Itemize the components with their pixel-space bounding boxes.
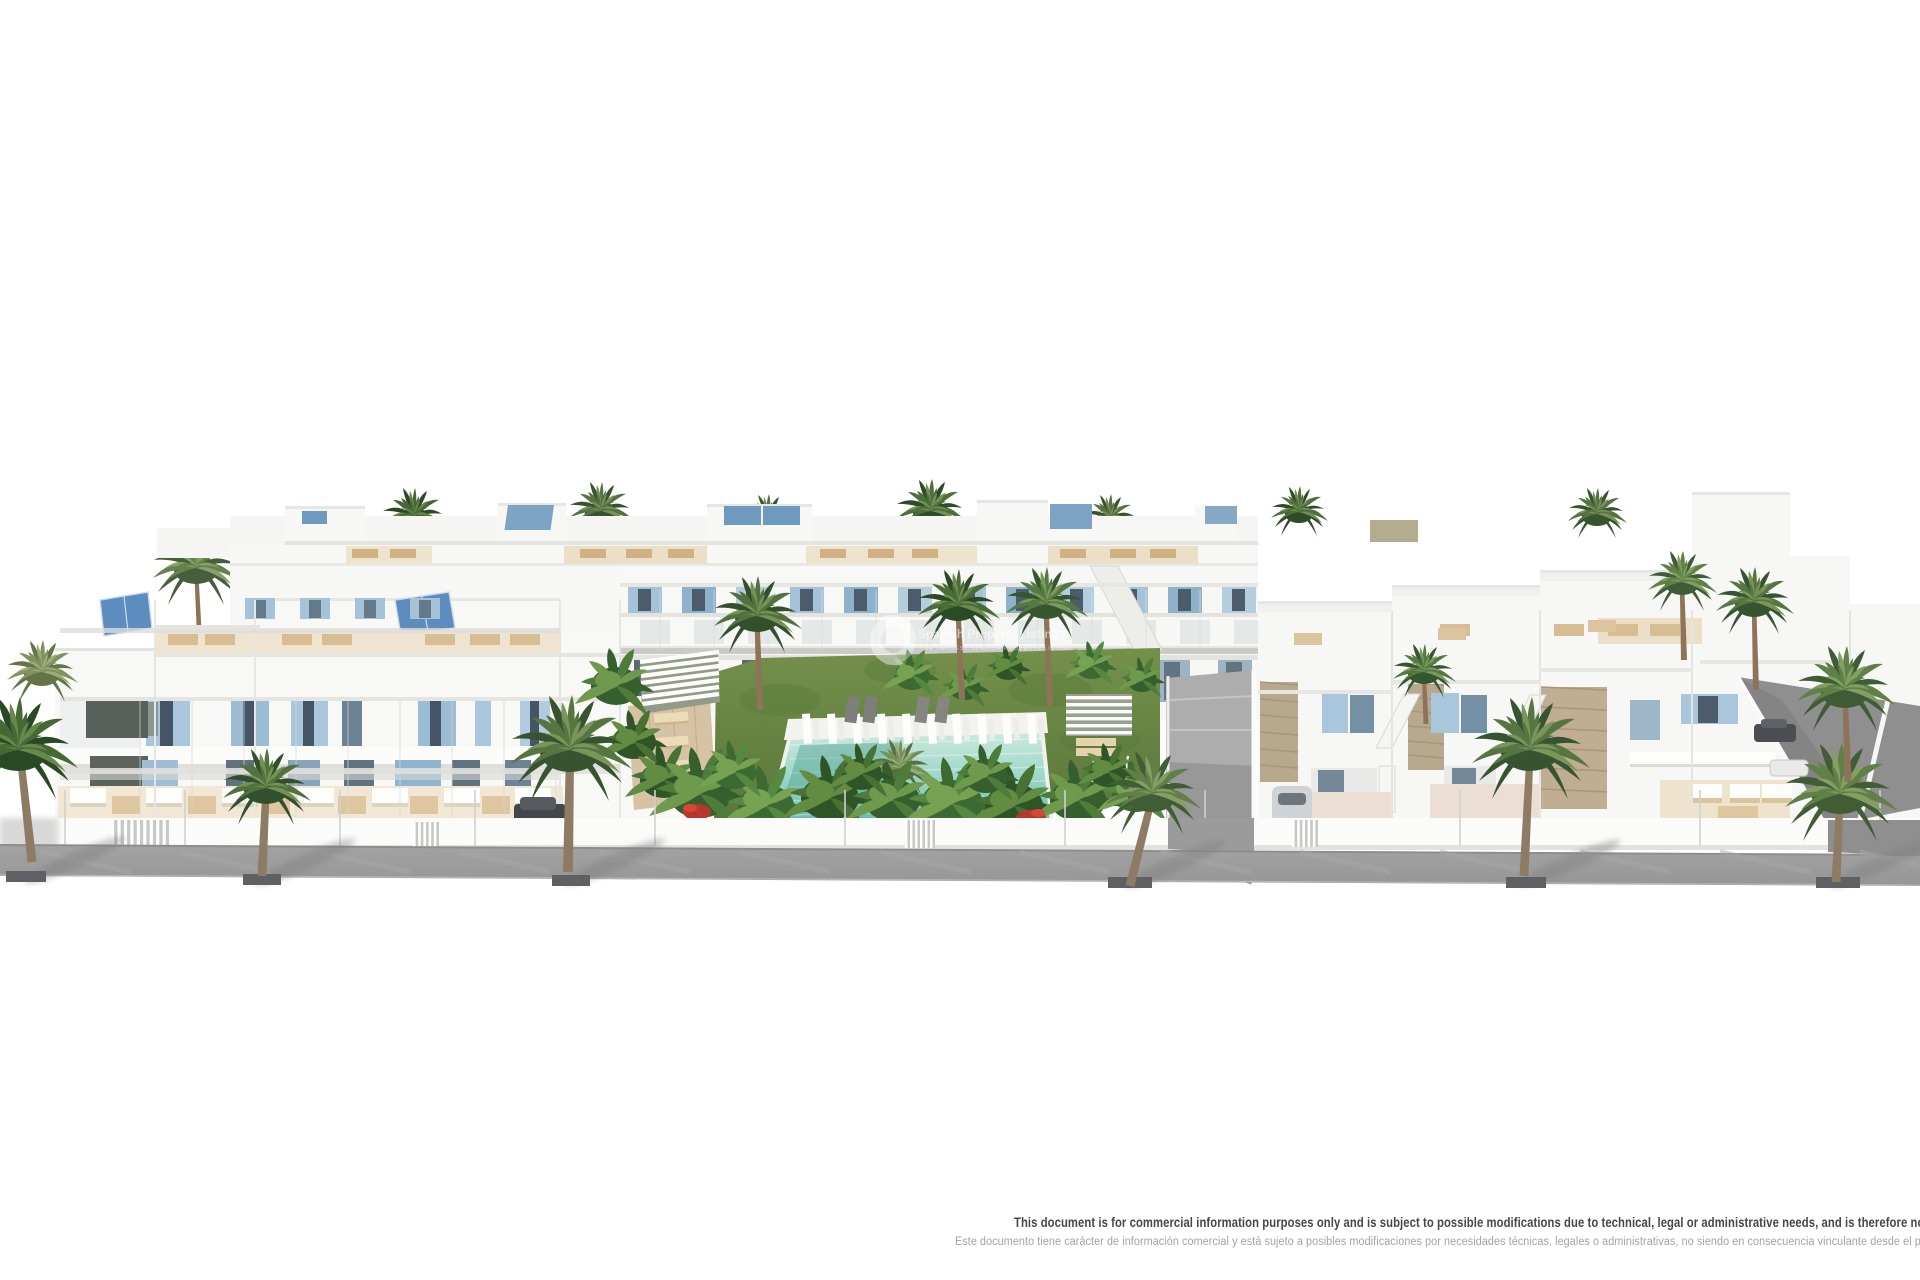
svg-text:THE LARGEST SPANISH PROPERTY L: THE LARGEST SPANISH PROPERTY LISTING — [920, 646, 1072, 652]
svg-text:Spanish Property Listings: Spanish Property Listings — [918, 629, 1066, 641]
